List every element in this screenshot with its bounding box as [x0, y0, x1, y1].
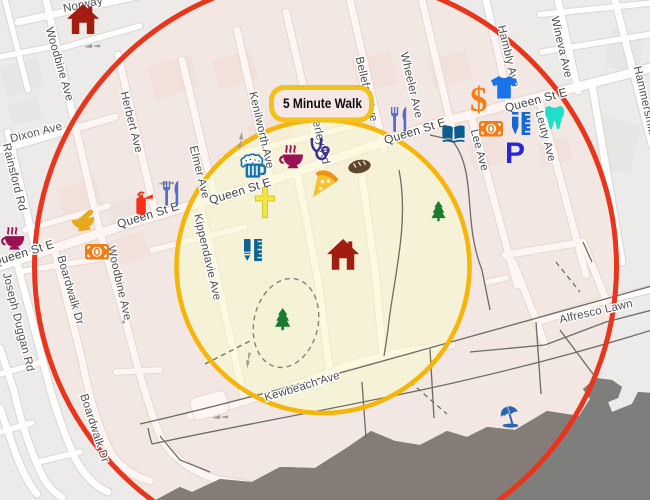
svg-text:P: P	[505, 137, 525, 170]
svg-text:$: $	[470, 80, 488, 119]
svg-text:5 Minute Walk: 5 Minute Walk	[283, 96, 362, 111]
